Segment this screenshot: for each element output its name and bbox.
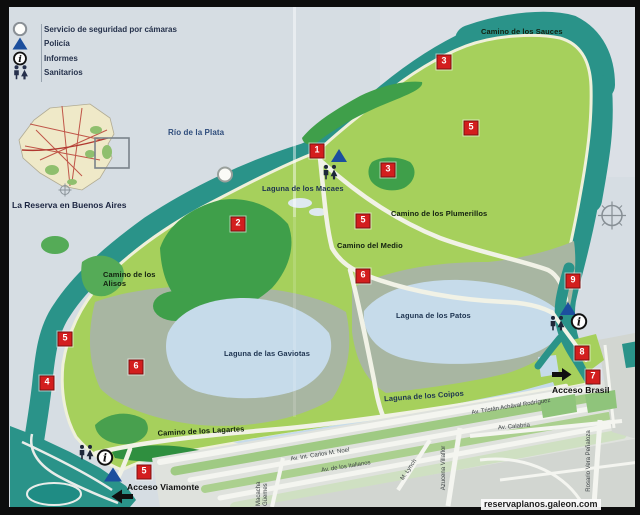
svg-text:i: i — [577, 316, 581, 329]
label-camino-medio: Camino del Medio — [337, 241, 403, 250]
svg-text:i: i — [18, 54, 22, 65]
inset-caption: La Reserva en Buenos Aires — [12, 200, 126, 210]
marker-3-center: 3 — [381, 163, 396, 178]
restroom-icon — [549, 316, 566, 337]
watermark: reservaplanos.galeon.com — [481, 499, 601, 510]
map-overlay: Servicio de seguridad por cámaras Policí… — [0, 0, 640, 515]
camera-circle-icon — [10, 22, 30, 36]
info-icon: i — [570, 313, 588, 336]
label-laguna-patos: Laguna de los Patos — [396, 311, 471, 320]
marker-3-north: 3 — [437, 55, 452, 70]
marker-7: 7 — [586, 370, 601, 385]
marker-5-south: 5 — [137, 465, 152, 480]
label-laguna-coipos: Laguna de los Coipos — [384, 389, 464, 404]
marker-6-center: 6 — [356, 269, 371, 284]
label-camino-lagartes: Camino de los Lagartes — [157, 424, 244, 438]
marker-6-west: 6 — [129, 360, 144, 375]
marker-5-northeast: 5 — [464, 121, 479, 136]
camera-circle-icon — [216, 166, 234, 189]
legend-divider — [41, 24, 42, 82]
restroom-icon — [322, 165, 339, 186]
marker-5-center: 5 — [356, 214, 371, 229]
marker-5-west: 5 — [58, 332, 73, 347]
marker-8: 8 — [575, 346, 590, 361]
info-icon: i — [96, 449, 114, 472]
label-street-guemes: Macacha Güemes — [256, 466, 270, 506]
marker-4: 4 — [40, 376, 55, 391]
label-acceso-brasil: Acceso Brasil — [552, 385, 610, 395]
label-street-villaflor: Azucena Villaflor — [441, 446, 447, 491]
label-rio-de-la-plata: Río de la Plata — [168, 128, 224, 137]
label-street-calabria: Av. Calabria — [498, 423, 531, 432]
marker-1: 1 — [310, 144, 325, 159]
marker-2: 2 — [231, 217, 246, 232]
inset-map — [10, 100, 138, 205]
label-laguna-gaviotas: Laguna de las Gaviotas — [224, 349, 310, 358]
compass-rose-icon — [595, 199, 629, 238]
label-camino-plumerillos: Camino de los Plumerillos — [391, 209, 487, 218]
legend-label: Sanitarios — [44, 68, 83, 77]
legend-row-informes: i Informes — [10, 51, 240, 66]
reserve-map-page: Servicio de seguridad por cámaras Policí… — [0, 0, 640, 515]
restroom-icon — [78, 445, 95, 466]
info-icon: i — [10, 51, 30, 66]
label-camino-sauces: Camino de los Sauces — [481, 27, 563, 36]
label-street-noel: Av. Int. Carlos M. Noel — [290, 447, 350, 462]
legend-label: Servicio de seguridad por cámaras — [44, 25, 177, 34]
arrow-left-icon — [111, 489, 133, 509]
label-street-lynch: M. Lynch — [400, 458, 418, 481]
arrow-right-icon — [552, 368, 572, 387]
label-street-penaloza: Rosario Vera Peñaloza — [586, 430, 592, 491]
label-street-italianos: Av. de los Italianos — [321, 460, 371, 474]
legend-row-police: Policía — [10, 37, 240, 52]
legend-row-cameras: Servicio de seguridad por cámaras — [10, 22, 240, 37]
label-acceso-viamonte: Acceso Viamonte — [127, 482, 199, 492]
legend: Servicio de seguridad por cámaras Policí… — [10, 22, 240, 80]
legend-label: Policía — [44, 39, 70, 48]
label-street-rodriguez: Av. Tristán Achával Rodríguez — [471, 398, 551, 416]
restroom-icon — [10, 65, 30, 80]
legend-label: Informes — [44, 54, 78, 63]
legend-row-sanitarios: Sanitarios — [10, 66, 240, 81]
label-camino-alisos: Camino de los Alisos — [103, 270, 159, 289]
marker-9: 9 — [566, 274, 581, 289]
inset-map-drawing — [10, 100, 138, 200]
svg-text:i: i — [103, 452, 107, 465]
police-triangle-icon — [10, 37, 30, 50]
